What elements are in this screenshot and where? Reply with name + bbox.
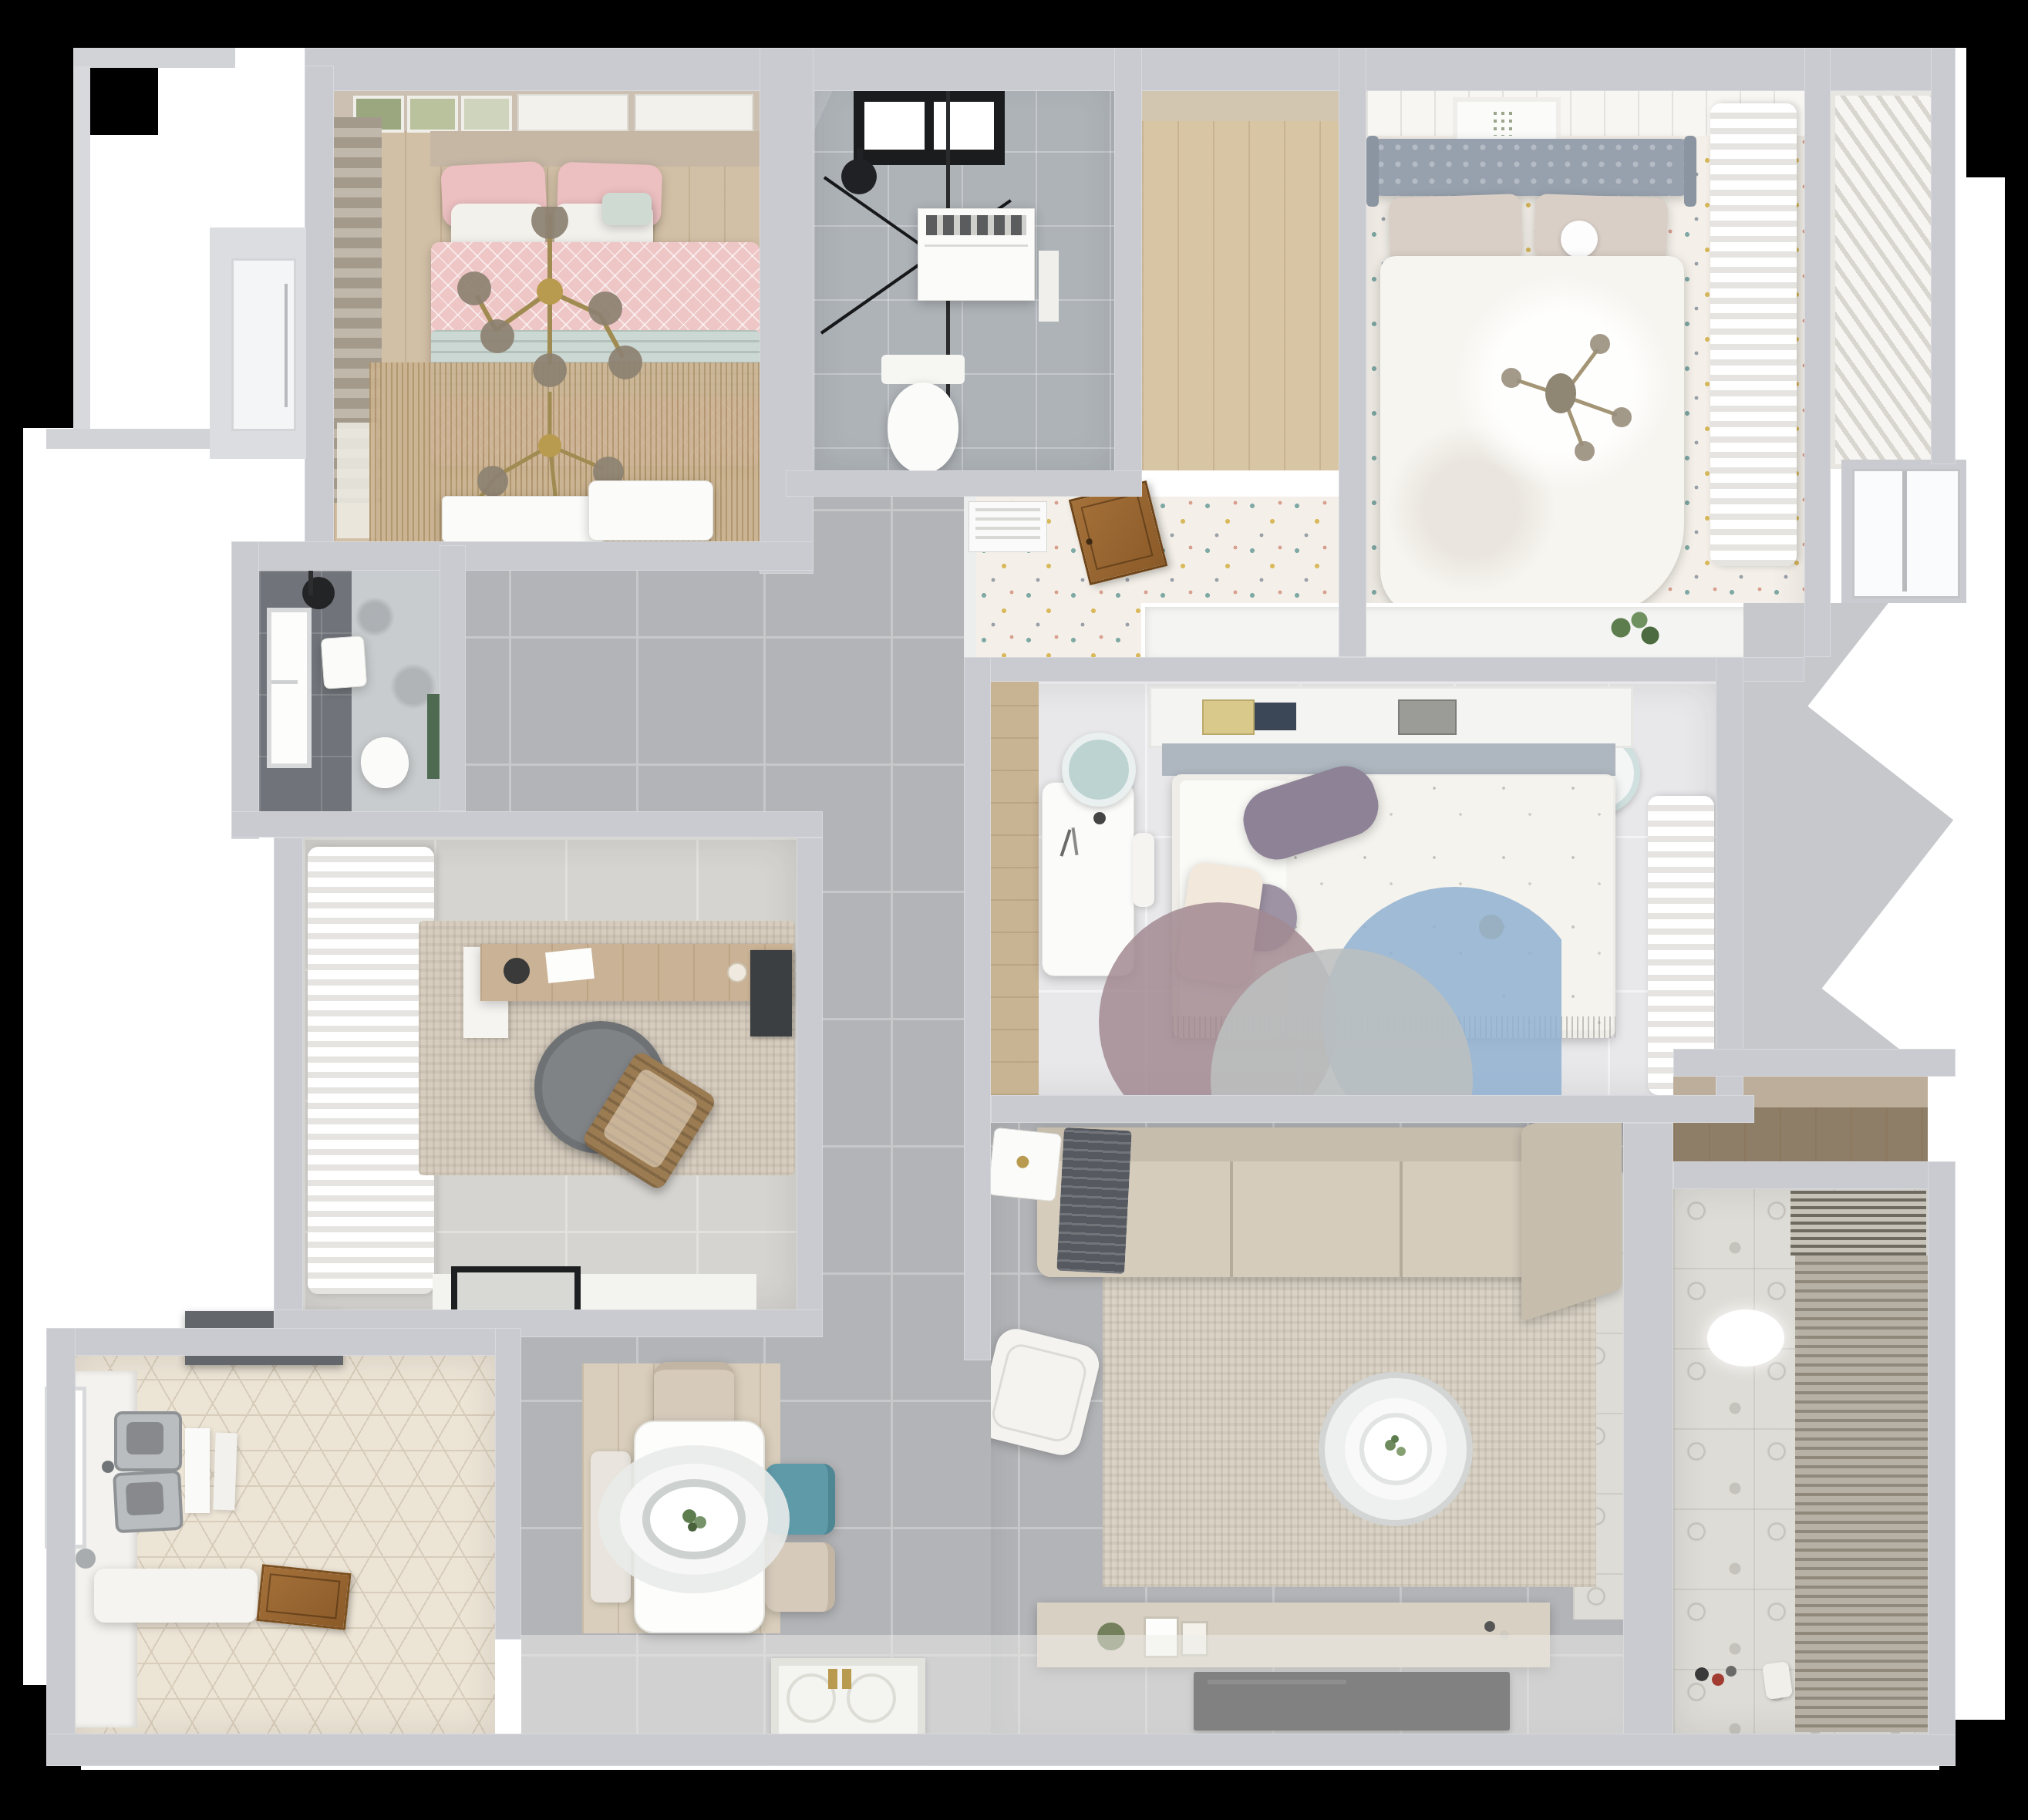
- wall-study-top: [231, 811, 823, 838]
- cutting-board: [185, 1428, 210, 1513]
- window-crossbar: [271, 680, 298, 684]
- window-nook: [1841, 460, 1966, 603]
- toy-icon: [1726, 1666, 1737, 1677]
- exterior-wall-step-vertical: [73, 66, 90, 449]
- wall-bath1-right: [1114, 48, 1142, 497]
- master-bedroom: [334, 91, 760, 544]
- steel-sink-icon: [114, 1411, 182, 1471]
- toilet-bowl-icon: [888, 383, 958, 470]
- beige-pillow: [1534, 194, 1669, 263]
- wall-entry-cabinet-top: [1673, 1049, 1956, 1077]
- exterior-wall-step: [73, 48, 235, 68]
- cross-chandelier-icon: [1474, 307, 1652, 484]
- headboard-shelf: [1149, 686, 1633, 748]
- walk-in-closet: [1142, 48, 1339, 470]
- headboard-side-rail: [1366, 136, 1379, 207]
- washing-machine: [918, 208, 1035, 301]
- wall-kitchen-left: [46, 1328, 76, 1760]
- towel-roll: [1762, 1661, 1793, 1700]
- headboard: [430, 131, 760, 167]
- toy-icon: [1695, 1667, 1709, 1681]
- side-curtains: [1710, 103, 1797, 566]
- gray-throw: [1056, 1127, 1132, 1274]
- armchair-seat-line: [991, 1341, 1090, 1444]
- door-hinge-line: [285, 284, 288, 407]
- open-wood-door: [256, 1564, 351, 1630]
- wall-panel: [635, 94, 753, 131]
- gray-headboard: [1162, 743, 1615, 776]
- venetian-blinds: [1795, 1255, 1928, 1732]
- toy-icon: [1712, 1673, 1724, 1686]
- monitor-panel: [750, 950, 792, 1036]
- door-panel-line: [266, 1573, 341, 1619]
- faucet-icon: [102, 1461, 114, 1473]
- bottom-walkway-sheen: [521, 1635, 1650, 1734]
- letterbox-left-upper: [0, 0, 73, 428]
- wall-closet-right: [1339, 48, 1366, 657]
- long-shelf: [1141, 603, 1812, 665]
- circle-rug: [1068, 887, 1561, 1095]
- wall-bottom-outer: [46, 1734, 1956, 1766]
- wall-study-left: [274, 838, 303, 1337]
- desk-pens: [1072, 827, 1079, 855]
- render-cutoff: [1822, 806, 1956, 1066]
- frame-plant-sketch: [1491, 110, 1513, 136]
- desk-plate-icon: [504, 958, 530, 984]
- wall-bedroom1-bottom: [231, 541, 814, 571]
- ac-vent-icon: [969, 501, 1047, 552]
- vent-slats: [975, 508, 1040, 545]
- shower-fitting: [308, 571, 313, 595]
- wall-bedroom2-top: [964, 657, 1804, 682]
- window-divider: [1902, 471, 1907, 591]
- desk-lamp-icon: [1093, 812, 1106, 824]
- white-desk: [442, 496, 605, 542]
- round-deco-pillow: [1561, 221, 1598, 258]
- picture-frame-icon: [461, 96, 512, 133]
- sink-basin: [126, 1481, 164, 1515]
- books: [1398, 699, 1457, 735]
- white-door: [231, 258, 296, 431]
- wall-kidsroom-right: [1804, 48, 1831, 657]
- books: [1202, 699, 1255, 735]
- wall-bedroom2-bottom: [991, 1095, 1754, 1123]
- teal-stool-icon: [1062, 733, 1136, 807]
- sink-basin: [126, 1422, 163, 1454]
- toilet-tank: [881, 355, 965, 384]
- letterbox-top-right: [1966, 0, 2028, 177]
- window-pane: [1852, 469, 1960, 598]
- ceiling-lamp-icon: [302, 577, 335, 609]
- kids-bedroom: [1366, 91, 1804, 657]
- gold-tray-icon: [1016, 1155, 1030, 1169]
- wall-louver-right: [1931, 48, 1956, 464]
- doormat: [451, 1266, 581, 1309]
- wood-floor-strip: [991, 682, 1039, 1095]
- window-icon: [267, 608, 312, 768]
- white-chair: [588, 480, 713, 541]
- wall-sink: [321, 635, 367, 689]
- kettle-icon: [76, 1549, 96, 1569]
- cutting-board: [213, 1433, 237, 1511]
- washer-door-seam: [925, 244, 1028, 247]
- doormat-gold-handles: [828, 1669, 837, 1689]
- potted-plant-icon: [1604, 606, 1669, 652]
- towel: [1039, 251, 1059, 322]
- wall-panel: [517, 94, 628, 131]
- wall-bedroom2-left: [964, 657, 991, 1360]
- ceiling-lamp-icon: [1707, 1309, 1784, 1367]
- brass-chandelier-icon: [434, 207, 665, 423]
- wall-kitchen-top: [46, 1328, 521, 1356]
- books: [1255, 703, 1296, 730]
- wall-bath1-bottom: [786, 470, 1142, 497]
- wall-balcony-top: [1673, 1161, 1956, 1189]
- wall-bedroom1-left: [305, 66, 334, 571]
- side-table: [991, 1127, 1062, 1202]
- ring-pendant-lamp-icon: [594, 1441, 794, 1598]
- shower-arm: [857, 148, 863, 174]
- tufted-headboard: [1373, 139, 1689, 196]
- kitchen: [76, 1356, 495, 1735]
- floor-plan: [0, 0, 2028, 1820]
- skylight-pane: [934, 102, 994, 150]
- l-shaped-desk: [480, 944, 793, 1001]
- slatted-wardrobe: [1831, 91, 1940, 469]
- picture-frame-icon: [407, 96, 458, 133]
- balcony-laundry: [1673, 1188, 1928, 1735]
- desk-pens: [1060, 829, 1072, 856]
- island-counter: [94, 1569, 258, 1623]
- sofa-chaise-angled: [1521, 1123, 1622, 1322]
- console-candles: [1484, 1621, 1495, 1632]
- white-curtains: [308, 847, 434, 1294]
- door-panel-line: [1081, 493, 1154, 570]
- study: [303, 838, 797, 1309]
- radiator-grate: [1791, 1191, 1926, 1255]
- steel-sink-icon: [113, 1470, 184, 1533]
- wall-living-right: [1623, 1123, 1673, 1751]
- desk-papers: [545, 948, 595, 983]
- desk-cup: [727, 962, 747, 982]
- wall-kitchen-right: [495, 1328, 521, 1640]
- wall-smallbath-left: [231, 541, 259, 839]
- headboard-side-rail: [1684, 136, 1696, 207]
- donut-coffee-table-icon: [1315, 1368, 1477, 1530]
- beige-pillow: [1389, 194, 1524, 263]
- sofa-seam: [1230, 1161, 1233, 1277]
- shower-bathroom: [814, 77, 1114, 470]
- green-cabinet: [427, 694, 440, 779]
- wall-smallbath-right: [440, 545, 466, 811]
- wall-balcony-right: [1928, 1161, 1956, 1735]
- small-bathroom: [259, 571, 440, 811]
- exterior-wall-step-lower: [46, 429, 235, 449]
- doormat-gold-handles: [842, 1669, 851, 1689]
- washer-control-panel: [926, 215, 1026, 235]
- skylight-pane: [864, 102, 925, 150]
- white-armchair: [991, 1325, 1103, 1460]
- second-bedroom: [991, 682, 1716, 1095]
- closet-wood-floor: [1142, 121, 1339, 470]
- doormat-ornament: [847, 1673, 896, 1723]
- wall-study-right: [797, 838, 823, 1337]
- hallway-corridor-floor: [814, 497, 964, 1357]
- sofa-seam: [1400, 1161, 1403, 1277]
